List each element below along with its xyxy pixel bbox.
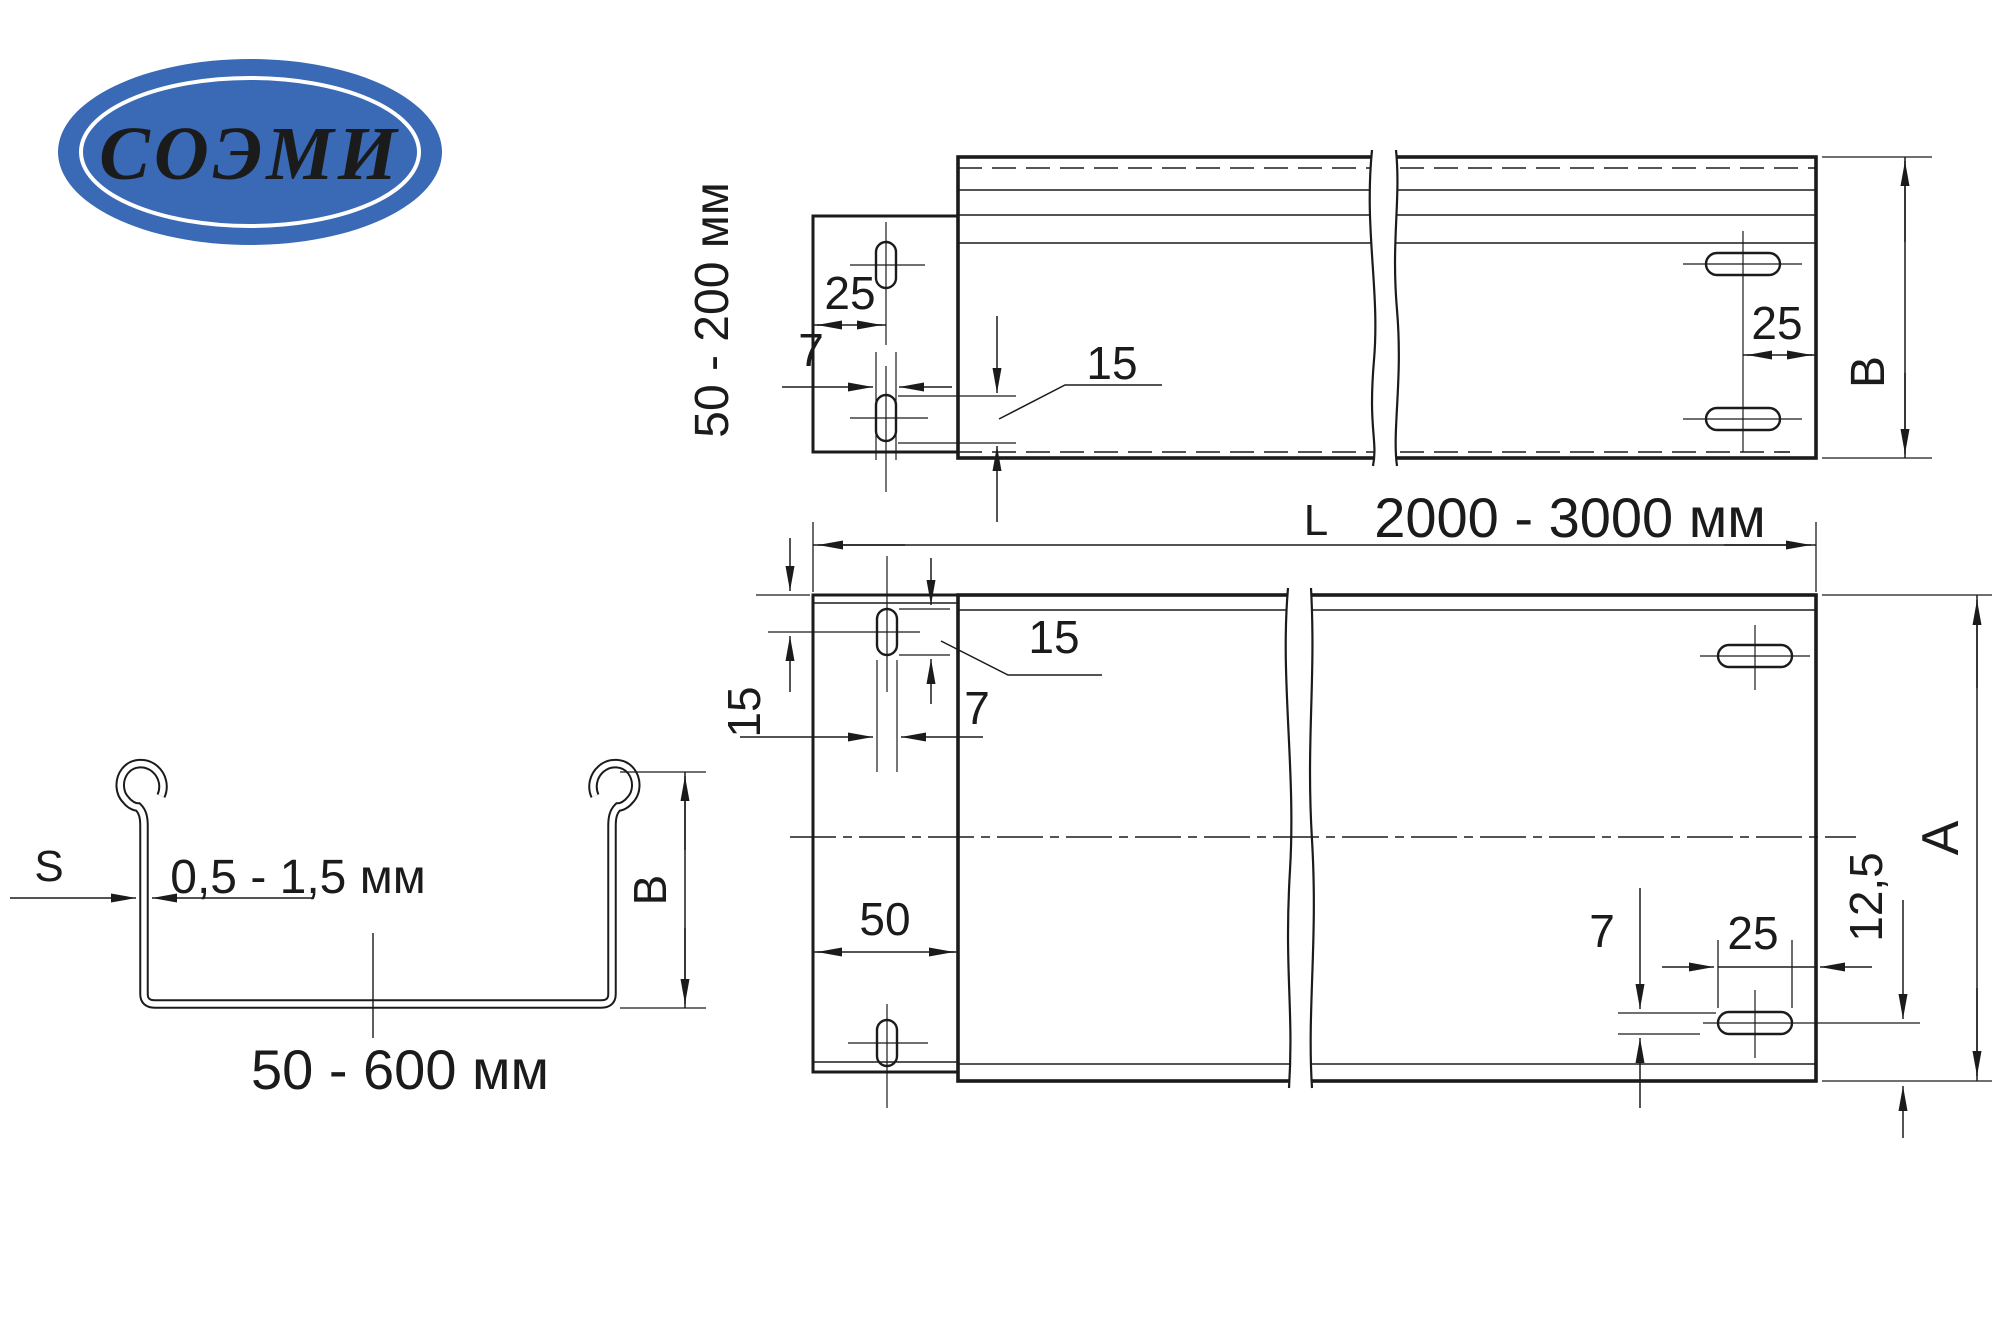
dimension-B-height — [1822, 157, 1932, 458]
logo-text: СОЭМИ — [99, 112, 401, 196]
dim-label-B: B — [1842, 356, 1895, 388]
leader-line — [999, 385, 1162, 419]
dimension-15-top-offset — [756, 538, 810, 692]
dim-label-25-tab: 25 — [824, 267, 875, 319]
logo: СОЭМИ — [58, 59, 442, 245]
dim-label-L: L — [1304, 496, 1328, 545]
dim-label-25-right: 25 — [1751, 297, 1802, 349]
dim-label-A: A — [1912, 820, 1970, 855]
dim-label-7-left: 7 — [964, 682, 990, 734]
dim-label-25-plan: 25 — [1727, 907, 1778, 959]
width-range-label: 50 - 600 мм — [251, 1038, 549, 1101]
dim-label-B-section: B — [624, 875, 676, 906]
dim-label-15-rotated: 15 — [718, 686, 770, 737]
dim-label-S: S — [34, 842, 63, 891]
dim-label-15-slot: 15 — [1086, 337, 1137, 389]
side-height-range-label: 50 - 200 мм — [686, 182, 739, 437]
dim-label-12-5: 12,5 — [1840, 852, 1892, 942]
thickness-range-label: 0,5 - 1,5 мм — [170, 851, 425, 904]
plan-connector-tab — [813, 595, 958, 1072]
dim-label-7-right: 7 — [1589, 905, 1615, 957]
plan-view — [740, 522, 1992, 1138]
dim-label-15-leader: 15 — [1028, 611, 1079, 663]
cable-tray-drawing: СОЭМИ — [0, 0, 2000, 1333]
dimension-7-right-slot — [1618, 888, 1716, 1108]
technical-drawing-page: СОЭМИ — [0, 0, 2000, 1333]
dim-label-50: 50 — [859, 893, 910, 945]
plan-body — [958, 595, 1816, 1081]
dim-label-length-range: 2000 - 3000 мм — [1374, 486, 1765, 549]
slot-crosshairs — [768, 556, 950, 1108]
dim-label-7-slot: 7 — [798, 324, 824, 376]
slot-crosshairs — [1700, 625, 1920, 1058]
